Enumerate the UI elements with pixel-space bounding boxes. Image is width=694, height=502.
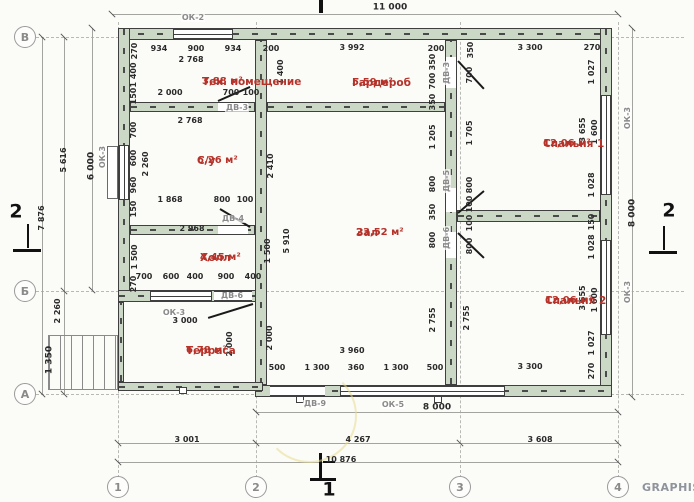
opening-label: ОК-2: [181, 14, 205, 22]
dim-label: 2 410: [267, 153, 275, 178]
dim-label: 800: [429, 232, 437, 249]
dim-label: 1 705: [466, 120, 474, 145]
wall-segment: [600, 28, 612, 397]
dim-label: 6 000: [88, 152, 97, 180]
dim-label: 600: [130, 150, 138, 167]
dim-label: 3 960: [339, 347, 364, 355]
floor-plan: 11 000ОК-22709349009342003 9922003503 30…: [0, 0, 694, 502]
section-marker-bar: [319, 0, 323, 13]
floor-plan-canvas: 11 000ОК-22709349009342003 9922003503 30…: [0, 0, 694, 502]
dim-label: 500: [427, 364, 444, 372]
dim-label: 3 608: [527, 436, 552, 444]
dim-label: 1 205: [429, 124, 437, 149]
opening-label: ДВ-6: [220, 292, 244, 300]
window-ok-3-left: [119, 145, 129, 200]
dim-label: 2 755: [463, 305, 471, 330]
dim-label: 800: [429, 176, 437, 193]
dim-label: 4 267: [345, 436, 370, 444]
dim-label: 3 000: [172, 317, 197, 325]
section-marker-bar: [27, 224, 29, 248]
dim-label: 100: [243, 89, 260, 97]
dim-label: 934: [151, 45, 168, 53]
dim-label: 100: [466, 196, 474, 213]
dim-label: 100: [466, 215, 474, 232]
dim-label: 700: [130, 122, 138, 139]
dim-label: 270: [131, 43, 139, 60]
dim-label: 270: [584, 44, 601, 52]
wall-segment: [457, 210, 600, 222]
dim-label: 5 616: [60, 147, 68, 172]
opening-label: ДВ-9: [303, 400, 327, 408]
axis-marker: Б: [14, 280, 36, 302]
section-label: 2: [9, 203, 22, 222]
dim-label: 700: [136, 273, 153, 281]
dim-label: 400: [245, 273, 262, 281]
dim-label: 5 910: [283, 228, 291, 253]
dim-label: 800: [214, 196, 231, 204]
opening-label: ДВ-3: [225, 104, 249, 112]
axis-marker: В: [14, 26, 36, 48]
dim-label: 200: [428, 45, 445, 53]
dim-label: 1 300: [383, 364, 408, 372]
dim-label: 8 000: [629, 199, 638, 227]
dim-label: 800: [466, 238, 474, 255]
dim-label: 360: [348, 364, 365, 372]
opening-label: ДВ-3: [443, 61, 451, 85]
dim-label: 2 755: [429, 307, 437, 332]
dim-label: 3 001: [174, 436, 199, 444]
grid-line: [460, 22, 461, 478]
dim-label: 700: [466, 67, 474, 84]
dim-label: 1 027: [588, 59, 596, 84]
dim-label: 400: [187, 273, 204, 281]
section-label: 2: [662, 202, 675, 221]
dim-label: 150: [588, 214, 596, 231]
dim-label: 2 768: [178, 56, 203, 64]
dim-label: 960: [130, 177, 138, 194]
section-marker-bar: [649, 251, 677, 254]
window-ok-3-terrace: [150, 291, 212, 301]
dim-label: 700: [429, 73, 437, 90]
window-ok-2: [173, 29, 233, 39]
dim-label: 1 350: [46, 346, 55, 374]
dim-label: 150: [130, 88, 138, 105]
dim-label: 1 027: [588, 330, 596, 355]
dim-label: 8 000: [423, 404, 451, 413]
door-swing: [208, 303, 254, 319]
dim-label: 2 260: [142, 151, 150, 176]
room-area: 12,06 м²: [545, 295, 593, 308]
dim-label: 1 028: [588, 234, 596, 259]
dim-label: 1 300: [304, 364, 329, 372]
wall-segment: [445, 40, 457, 385]
dim-label: 900: [188, 45, 205, 53]
dim-label: 700: [223, 89, 240, 97]
dim-label: 934: [225, 45, 242, 53]
dim-label: 11 000: [373, 4, 407, 13]
dim-label: 10 876: [326, 456, 357, 464]
section-marker-bar: [13, 249, 41, 252]
grid-line: [618, 22, 619, 478]
dim-label: 2 968: [179, 225, 204, 233]
opening-label: ДВ-5: [443, 169, 451, 193]
axis-marker: 4: [607, 476, 629, 498]
opening-label: ДВ-4: [221, 215, 245, 223]
opening-label: ОК-3: [99, 145, 107, 169]
watermark-arc: [262, 368, 357, 463]
dim-label: 7 876: [38, 205, 46, 230]
dim-label: 350: [429, 54, 437, 71]
dim-label: 1 400: [130, 62, 138, 87]
dim-label: 350: [429, 204, 437, 221]
room-area: 6,78 м²: [186, 345, 227, 358]
dim-label: 200: [263, 45, 280, 53]
graphisoft-watermark: GRAPHISO: [642, 481, 694, 494]
dim-label: 1 500: [264, 238, 272, 263]
dim-label: 350: [429, 94, 437, 111]
section-label: 1: [322, 481, 335, 500]
door-dv-4: [218, 225, 248, 235]
wall-segment: [118, 302, 124, 382]
opening-label: ОК-3: [624, 106, 632, 130]
window-ok-5: [340, 386, 505, 396]
dim-label: 3 300: [517, 44, 542, 52]
room-area: 3,88 м²: [202, 76, 243, 89]
dim-label: 150: [130, 201, 138, 218]
column-base: [179, 387, 187, 394]
wall-segment: [267, 102, 445, 112]
window-sill: [107, 146, 118, 199]
wall-segment: [118, 382, 263, 391]
dim-label: 3 300: [517, 363, 542, 371]
room-area: 4,45 м²: [200, 252, 241, 265]
dim-label: 1 868: [157, 196, 182, 204]
room-area: 6,26 м²: [197, 155, 238, 168]
room-area: 5,59 м²: [352, 77, 393, 90]
dim-label: 2 768: [177, 117, 202, 125]
room-area: 23,52 м²: [356, 227, 404, 240]
section-marker-bar: [663, 226, 665, 250]
dim-label: 800: [466, 177, 474, 194]
dim-label: 100: [237, 196, 254, 204]
dim-label: 1 028: [588, 172, 596, 197]
dim-label: 2 260: [54, 298, 62, 323]
opening-label: ДВ-6: [443, 226, 451, 250]
dim-label: 600: [163, 273, 180, 281]
dim-label: 2 000: [266, 325, 274, 350]
dim-label: 1 500: [131, 244, 139, 269]
dim-label: 3 992: [339, 44, 364, 52]
window-ok-3-right-bottom: [601, 240, 611, 335]
dim-label: 900: [218, 273, 235, 281]
axis-marker: А: [14, 383, 36, 405]
axis-marker: 3: [449, 476, 471, 498]
dim-label: 350: [467, 42, 475, 59]
opening-label: ОК-3: [624, 280, 632, 304]
axis-marker: 1: [107, 476, 129, 498]
opening-label: ОК-5: [381, 401, 405, 409]
stairs: [48, 335, 118, 390]
dim-label: 500: [269, 364, 286, 372]
room-area: 12,06 м²: [543, 138, 591, 151]
dim-label: 270: [588, 363, 596, 380]
axis-marker: 2: [245, 476, 267, 498]
dim-label: 2 000: [157, 89, 182, 97]
dimension-line: [118, 462, 618, 463]
